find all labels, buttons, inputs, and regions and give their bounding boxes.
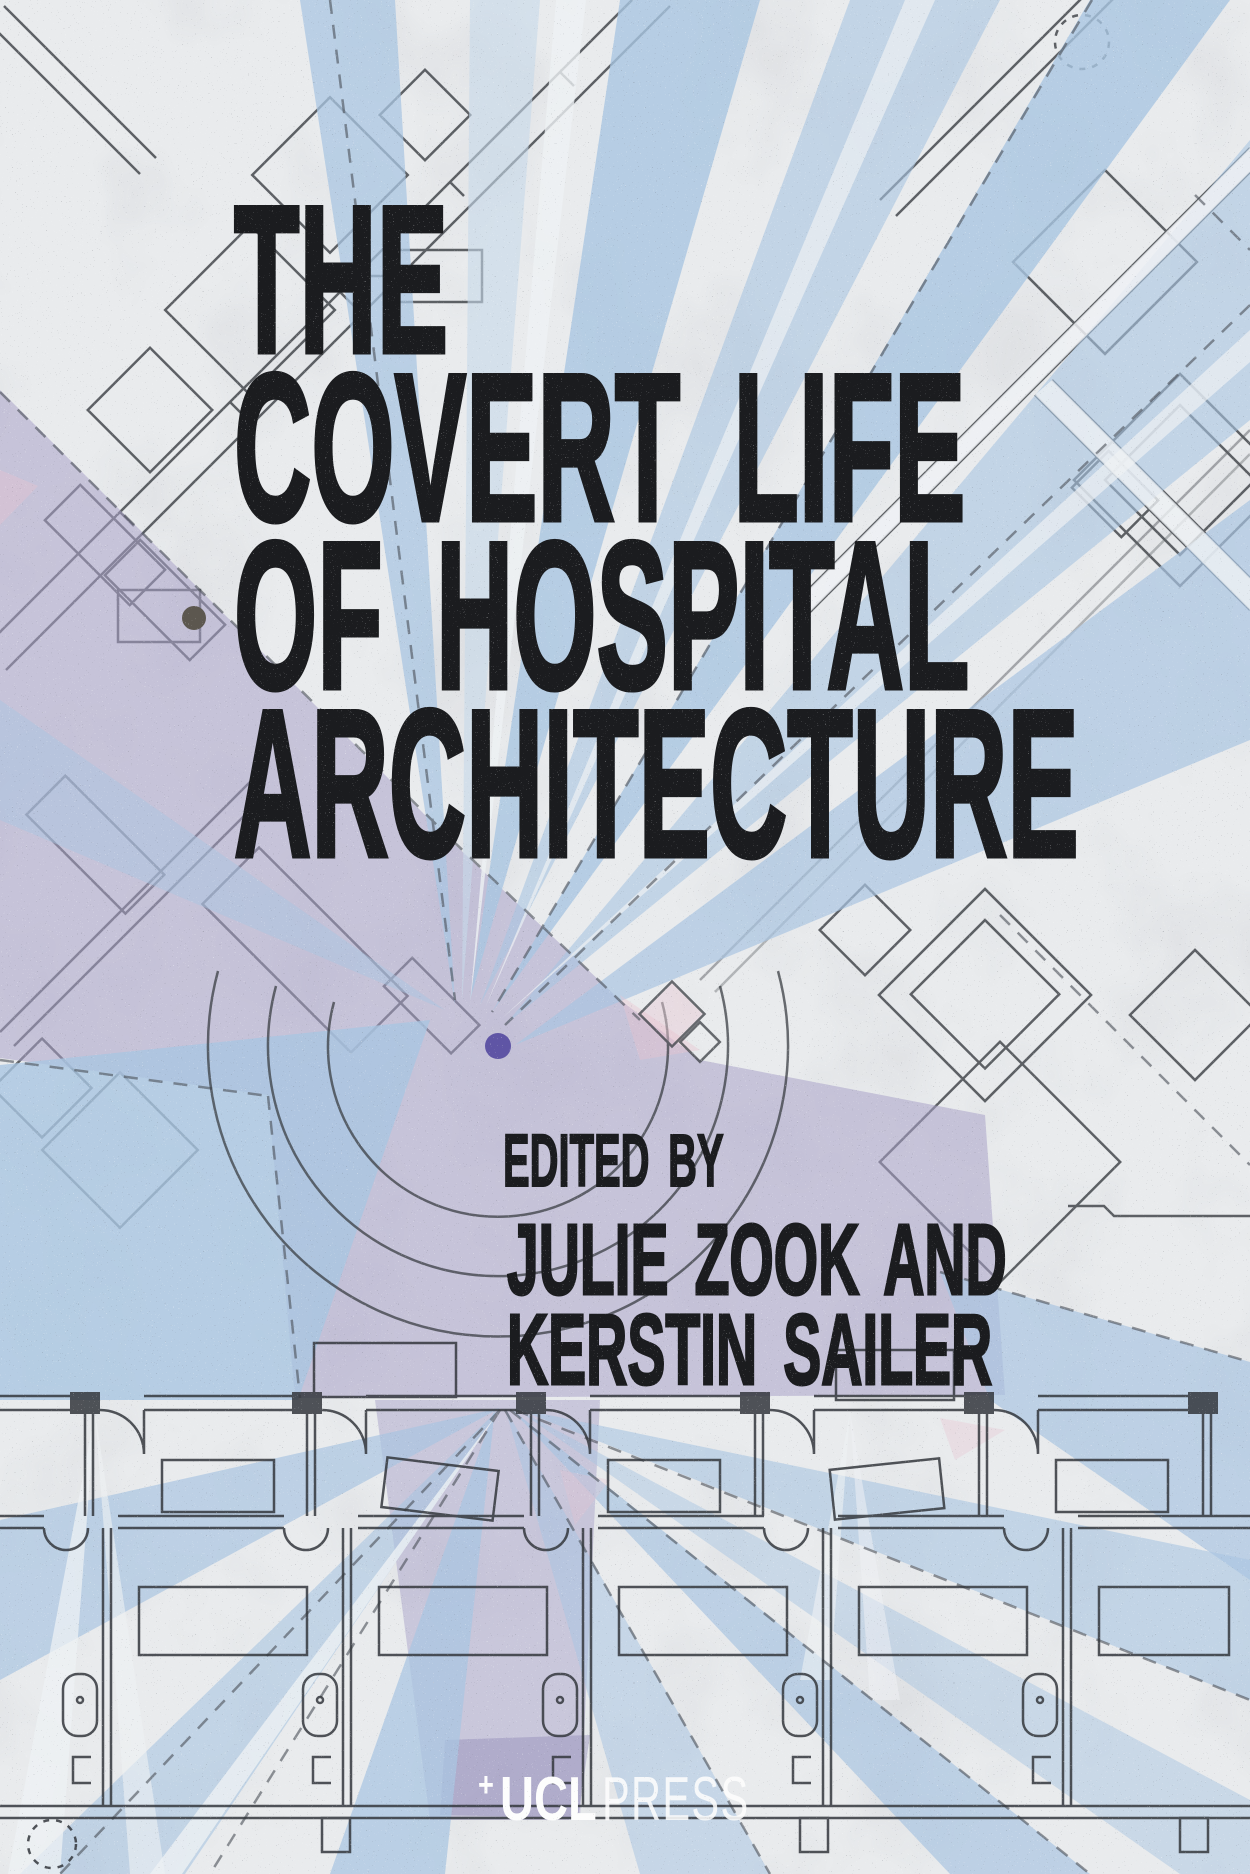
cover-artwork: THE COVERT LIFE OF HOSPITAL ARCHITECTURE… [0, 0, 1250, 1874]
grain-overlay-dark [0, 0, 1250, 1874]
book-cover: THE COVERT LIFE OF HOSPITAL ARCHITECTURE… [0, 0, 1250, 1874]
